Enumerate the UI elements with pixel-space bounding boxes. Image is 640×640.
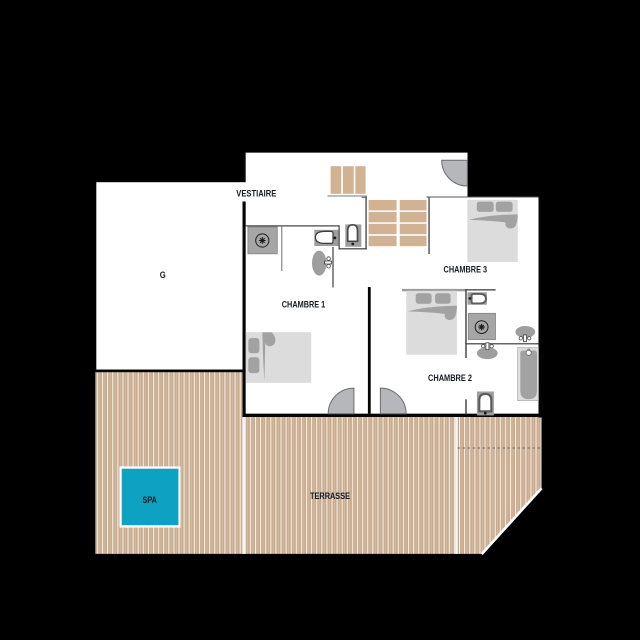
svg-text:CHAMBRE 2: CHAMBRE 2 <box>428 372 472 383</box>
svg-text:SPA: SPA <box>142 494 157 505</box>
svg-text:VESTIAIRE: VESTIAIRE <box>236 188 276 199</box>
svg-text:TERRASSE: TERRASSE <box>310 490 350 501</box>
svg-text:CHAMBRE 3: CHAMBRE 3 <box>444 264 488 275</box>
svg-text:CHAMBRE 1: CHAMBRE 1 <box>282 299 326 310</box>
svg-text:G: G <box>160 270 166 280</box>
